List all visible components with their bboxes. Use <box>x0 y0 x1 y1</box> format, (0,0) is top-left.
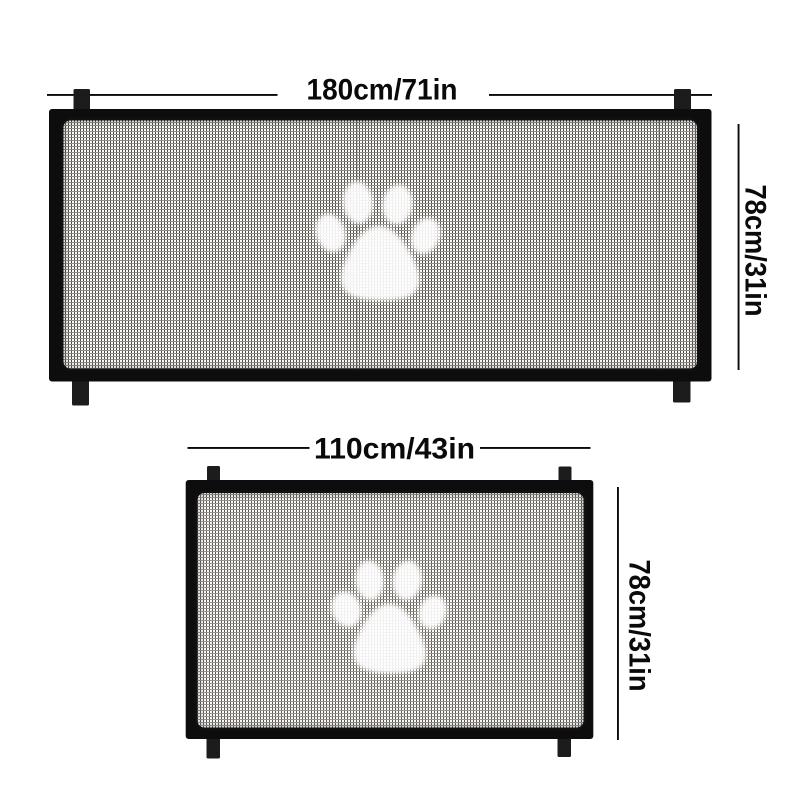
svg-text:110cm/43in: 110cm/43in <box>314 433 475 466</box>
svg-text:180cm/71in: 180cm/71in <box>307 74 458 107</box>
svg-text:78cm/31in: 78cm/31in <box>623 560 656 692</box>
svg-text:78cm/31in: 78cm/31in <box>739 185 772 317</box>
